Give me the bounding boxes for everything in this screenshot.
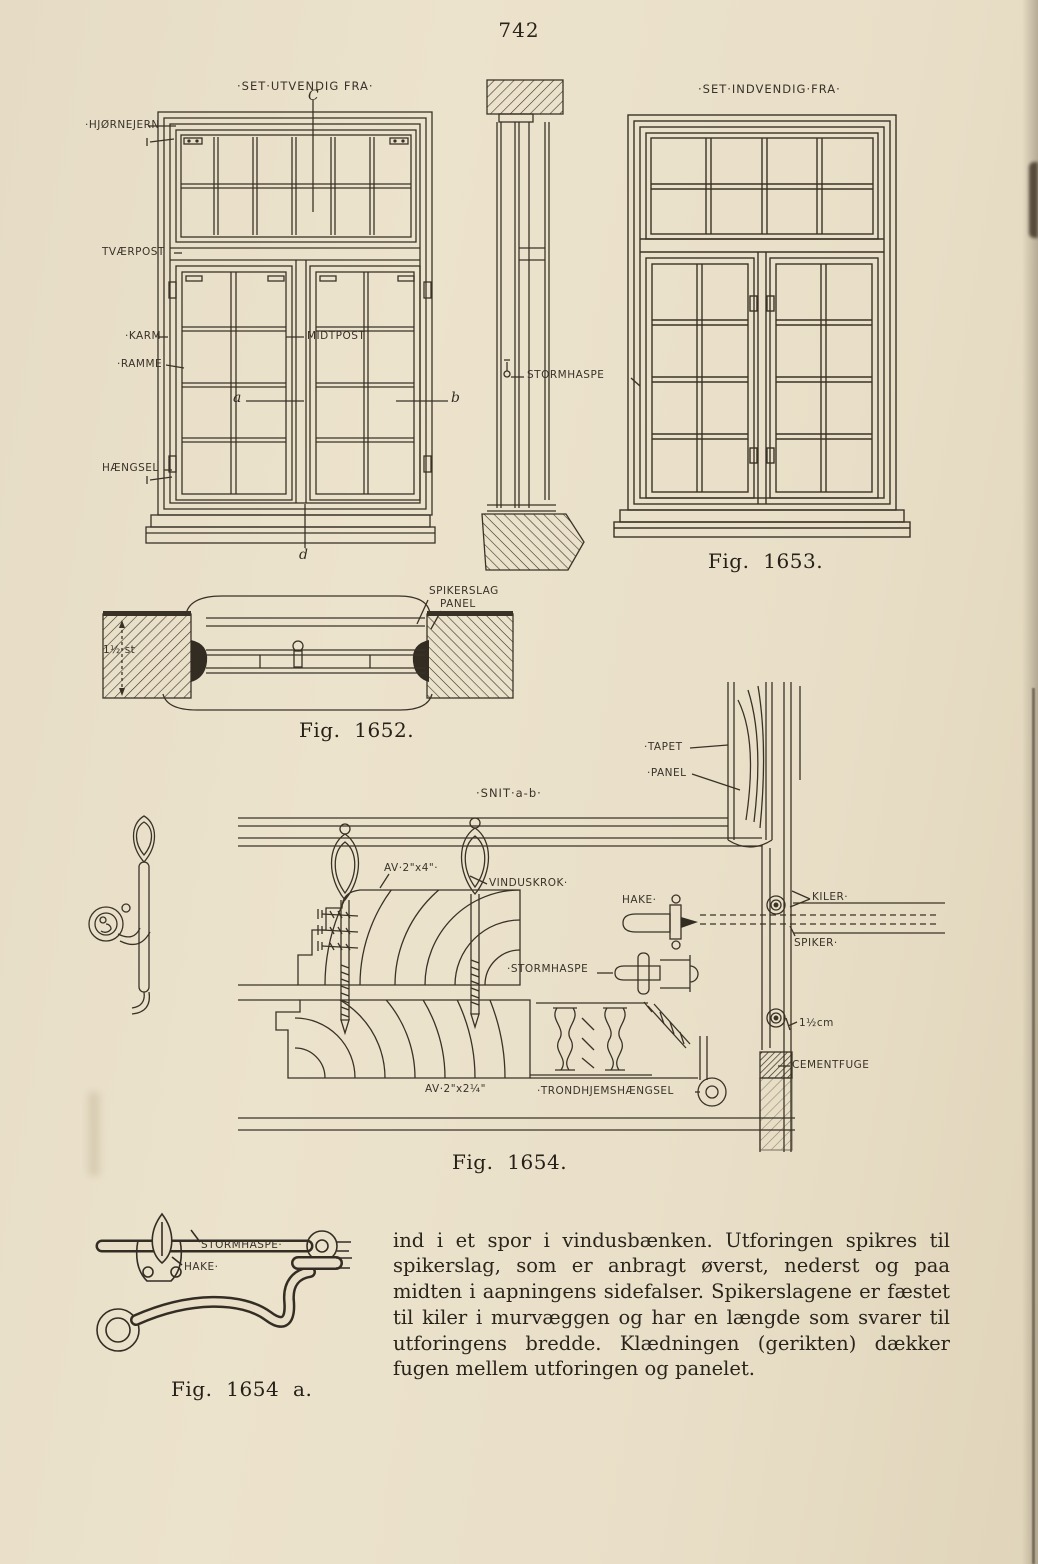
label-vinduskrok: VINDUSKROK· <box>489 877 568 889</box>
letter-d: d <box>299 547 308 563</box>
label-haengsel: HÆNGSEL <box>102 462 159 474</box>
caption-fig-1654a: Fig. 1654 a. <box>171 1377 312 1401</box>
label-1-5-cm: 1½cm <box>799 1017 834 1029</box>
window-interior-drawing <box>614 115 910 537</box>
paper-smudge <box>88 1092 100 1176</box>
scan-edge-mark <box>1029 162 1038 238</box>
wall-section-drawing <box>89 682 945 1152</box>
interior-view-title: ·SET·INDVENDIG·FRA· <box>698 82 841 96</box>
label-midtpost: MIDTPOST <box>307 330 365 342</box>
label-spiker: SPIKER· <box>794 937 838 949</box>
label-hjornejern: ·HJØRNEJERN <box>85 119 160 131</box>
label-ramme: ·RAMME <box>117 358 162 370</box>
label-tvaerpost: TVÆRPOST <box>102 246 165 258</box>
label-stormhaspe-section: STORMHASPE <box>527 369 604 381</box>
caption-fig-1654: Fig. 1654. <box>452 1150 567 1174</box>
label-cementfuge: CEMENTFUGE <box>792 1059 869 1071</box>
page-number: 742 <box>0 18 1038 42</box>
caption-fig-1652: Fig. 1652. <box>299 718 414 742</box>
label-hake-1654a: HAKE· <box>184 1261 218 1273</box>
label-trondhjemshaengsel: ·TRONDHJEMSHÆNGSEL <box>537 1085 674 1097</box>
body-paragraph: ind i et spor i vindusbænken. Utforingen… <box>393 1228 950 1383</box>
label-kiler: KILER· <box>812 891 848 903</box>
label-spikerslag: SPIKERSLAG <box>429 585 499 597</box>
letter-c: C <box>308 88 319 104</box>
label-panel-1654: ·PANEL <box>647 767 687 779</box>
hardware-drawing <box>97 1214 352 1351</box>
exterior-view-title: ·SET·UTVENDIG FRA· <box>237 79 374 93</box>
label-hake-1654: HAKE· <box>622 894 656 906</box>
window-exterior-drawing <box>146 100 448 548</box>
window-section-drawing <box>482 80 584 570</box>
scan-edge-line <box>1032 688 1035 1564</box>
section-title-snit: ·SNIT·a-b· <box>476 786 542 800</box>
sill-section-drawing <box>103 596 513 710</box>
label-tapet: ·TAPET <box>644 741 683 753</box>
label-wall-thickness: 1½ st <box>103 644 135 656</box>
label-av-2x4: AV·2"x4"· <box>384 862 438 874</box>
label-panel-1652: PANEL <box>440 598 476 610</box>
label-karm: ·KARM <box>125 330 161 342</box>
letter-b: b <box>451 390 460 406</box>
label-stormhaspe-1654: ·STORMHASPE <box>507 963 588 975</box>
caption-fig-1653: Fig. 1653. <box>708 549 823 573</box>
label-stormhaspe-1654a: STORMHASPE· <box>201 1239 282 1251</box>
book-page: 742 ·SET·UTVENDIG FRA· ·SET·INDVENDIG·FR… <box>0 0 1038 1564</box>
label-av-2x2-25: AV·2"x2¼" <box>425 1083 486 1095</box>
letter-a: a <box>233 390 241 406</box>
